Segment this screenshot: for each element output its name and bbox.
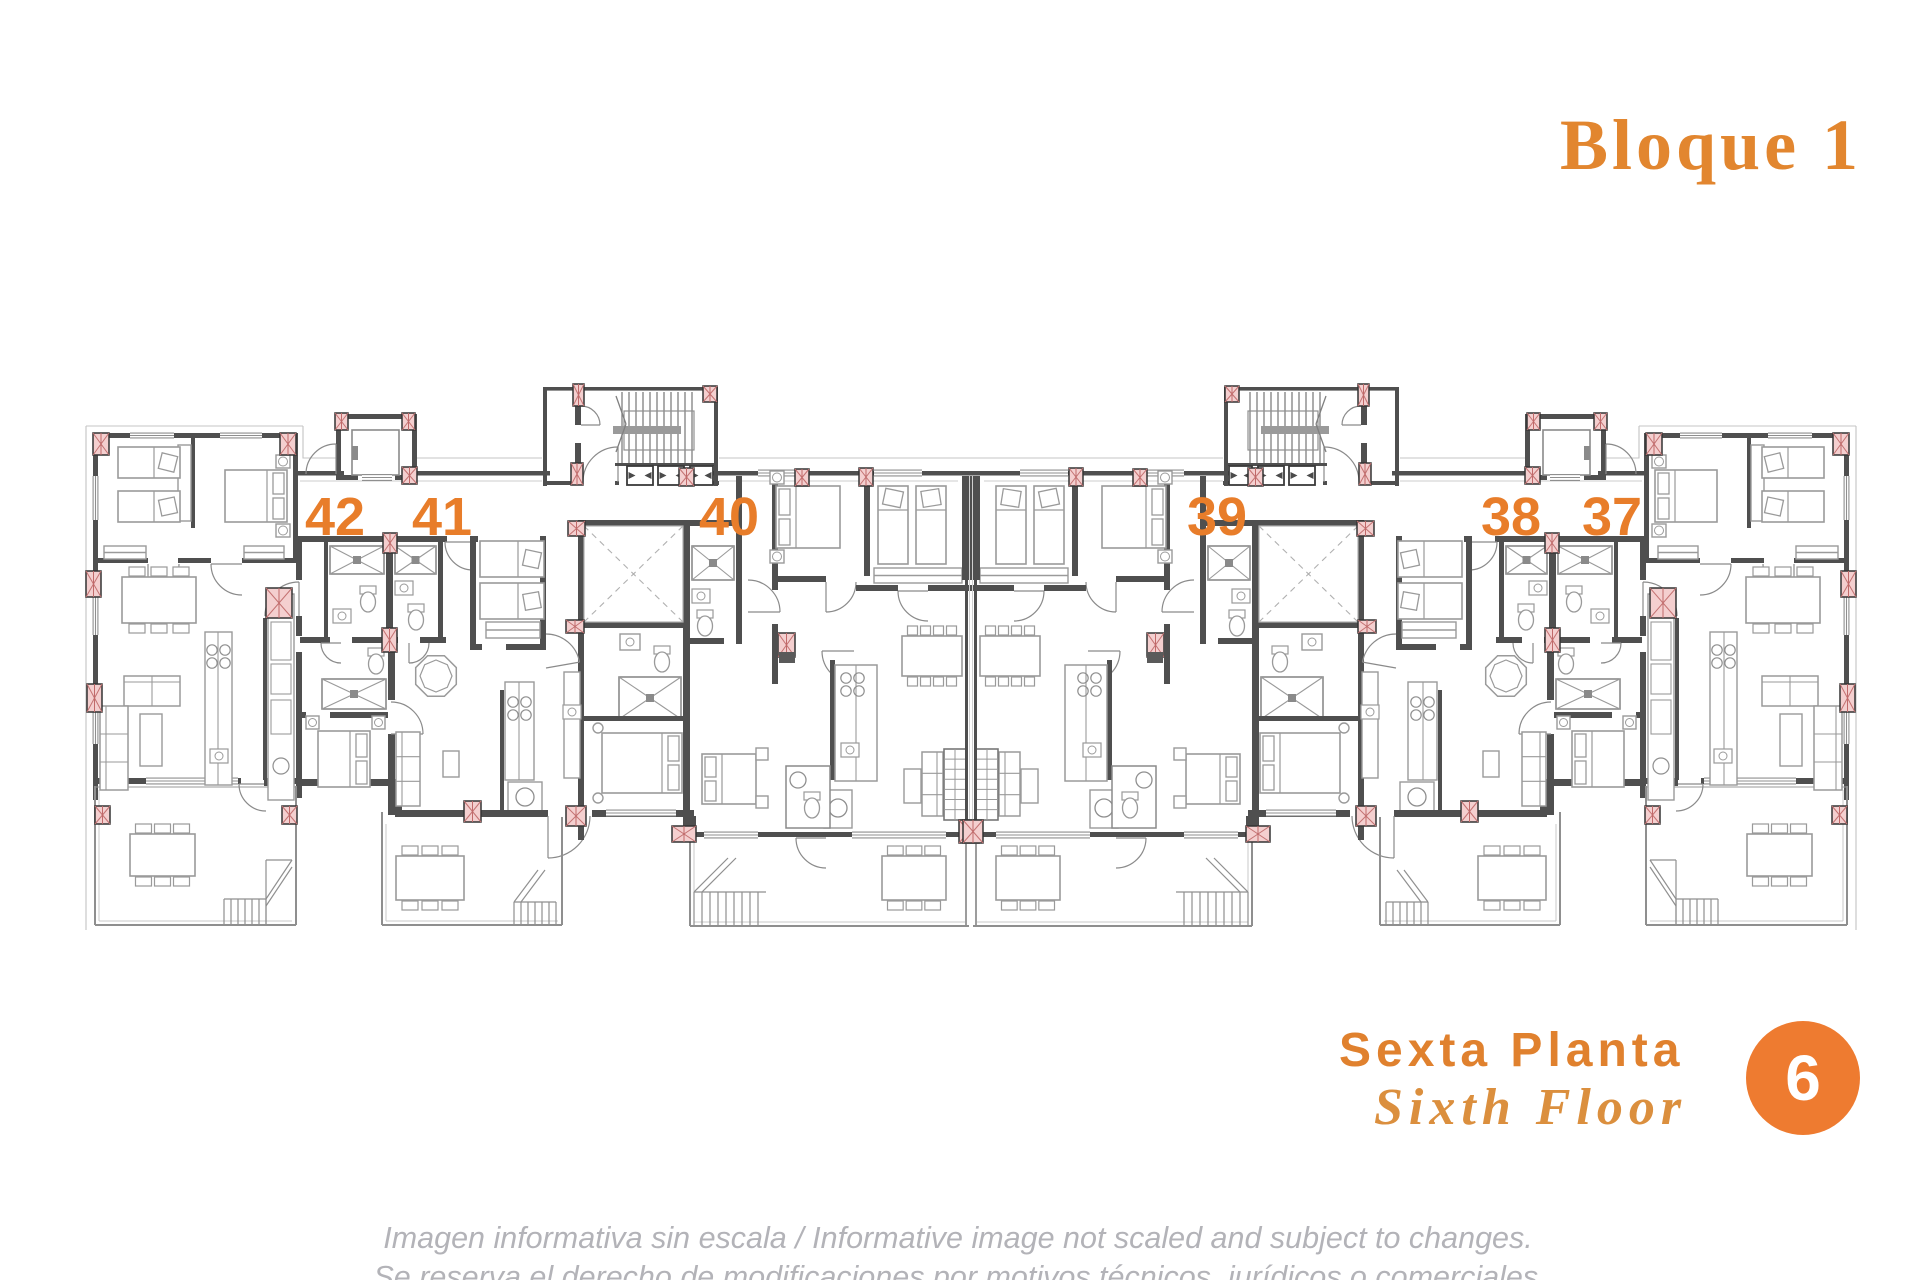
svg-text:Bloque 1: Bloque 1 xyxy=(1560,105,1862,185)
svg-text:42: 42 xyxy=(305,487,365,547)
svg-text:Sixth Floor: Sixth Floor xyxy=(1374,1079,1687,1136)
svg-text:6: 6 xyxy=(1785,1042,1821,1114)
svg-text:Sexta Planta: Sexta Planta xyxy=(1339,1024,1684,1077)
svg-text:37: 37 xyxy=(1582,487,1642,547)
svg-text:39: 39 xyxy=(1187,487,1247,547)
svg-text:Se reserva el derecho de modif: Se reserva el derecho de modificaciones … xyxy=(373,1260,1546,1280)
svg-text:40: 40 xyxy=(699,487,759,547)
svg-text:Imagen informativa sin escala: Imagen informativa sin escala / Informat… xyxy=(383,1221,1532,1255)
svg-text:41: 41 xyxy=(412,487,472,547)
svg-text:38: 38 xyxy=(1481,487,1541,547)
